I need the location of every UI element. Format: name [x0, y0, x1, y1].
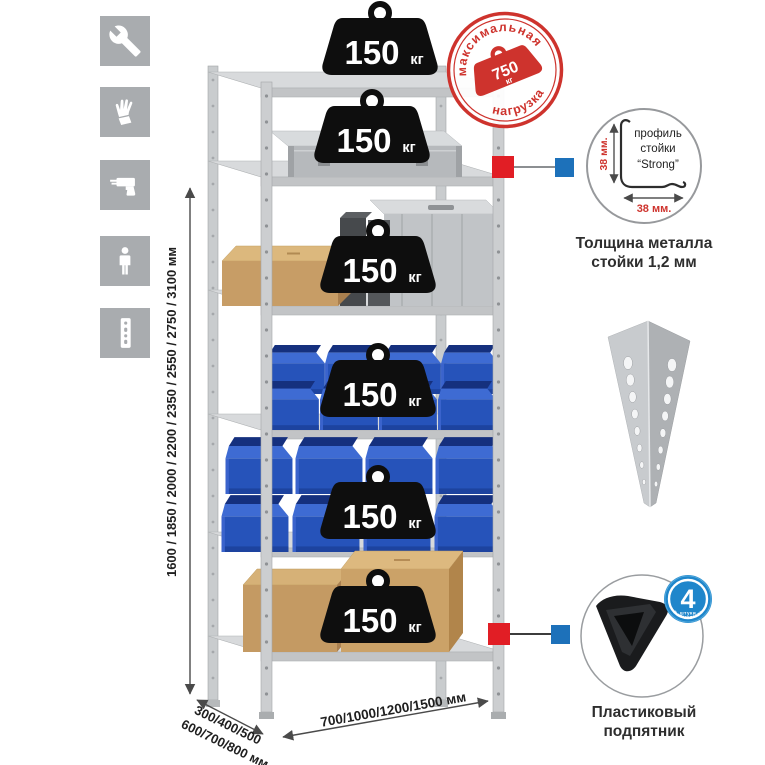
width-dimension: 700/1000/1200/1500 мм	[283, 689, 488, 737]
profile-label-3: “Strong”	[637, 159, 679, 171]
red-marker-top	[492, 156, 514, 178]
height-dimension-label: 1600 / 1850 / 2000 / 2200 / 2350 / 2550 …	[164, 247, 179, 577]
depth-dimension: 300/400/500 600/700/800 мм	[179, 700, 271, 765]
post-profile-detail: 38 мм. 38 мм. профиль стойки “Strong”	[587, 109, 701, 223]
foot-caption-1: Пластиковый	[592, 704, 697, 721]
profile-dim-horizontal: 38 мм.	[637, 203, 672, 215]
count-badge-value: 4	[680, 584, 695, 614]
profile-caption-2: стойки 1,2 мм	[591, 254, 696, 271]
callout-connector-bottom	[488, 623, 570, 645]
red-marker-bottom	[488, 623, 510, 645]
profile-caption-1: Толщина металла	[576, 235, 713, 252]
load-badge-shelf2	[314, 92, 429, 163]
profile-label-2: стойки	[640, 143, 675, 155]
max-load-stamp: максимальная нагрузка 750 кг	[431, 0, 578, 144]
load-badge-shelf1	[322, 4, 437, 75]
blue-marker-top	[555, 158, 574, 177]
count-badge: 4 штуки в комплекте	[664, 575, 712, 623]
width-dimension-label: 700/1000/1200/1500 мм	[319, 689, 467, 729]
callout-connector-top	[492, 156, 574, 178]
shelving-rack-product-infographic: 150 кг	[0, 0, 765, 765]
foot-caption-2: подпятник	[603, 723, 684, 740]
plastic-foot-detail: 4 штуки в комплекте	[581, 575, 712, 697]
profile-label-1: профиль	[634, 128, 682, 140]
angle-post-image	[608, 321, 690, 507]
diagram-scene: 150 кг	[0, 0, 765, 765]
profile-dim-vertical: 38 мм.	[598, 137, 610, 170]
height-dimension: 1600 / 1850 / 2000 / 2200 / 2350 / 2550 …	[164, 188, 190, 694]
blue-marker-bottom	[551, 625, 570, 644]
